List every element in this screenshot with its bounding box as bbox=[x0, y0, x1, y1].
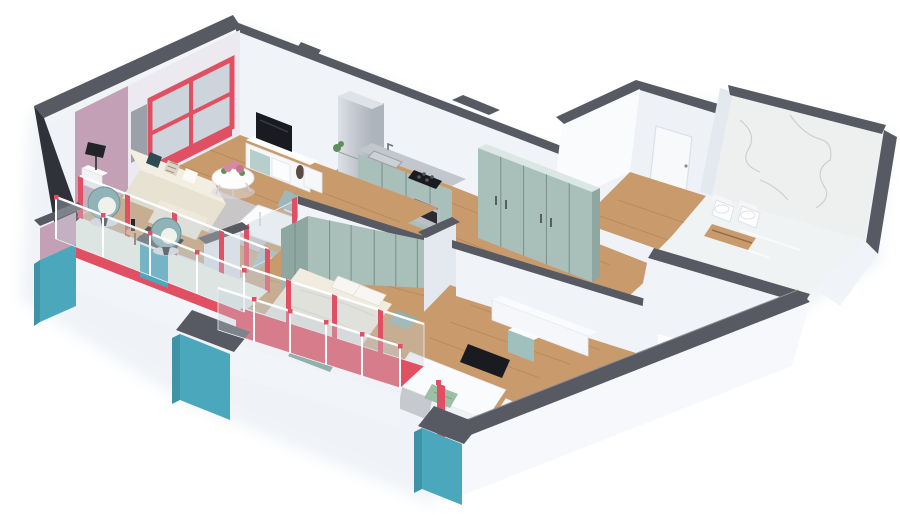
railing-red-connector bbox=[252, 297, 257, 302]
railing-red-connector bbox=[101, 213, 106, 218]
burner bbox=[425, 178, 429, 182]
centerpiece-flowers bbox=[236, 165, 244, 173]
railing-red-connector bbox=[54, 195, 59, 200]
burner bbox=[417, 175, 421, 179]
railing-red-connector bbox=[242, 268, 247, 273]
balcony-pillar-teal-side bbox=[172, 334, 180, 404]
balcony-return-teal-side bbox=[34, 260, 40, 326]
burner bbox=[430, 175, 434, 179]
bidet-seat bbox=[741, 211, 755, 219]
burner bbox=[422, 172, 426, 176]
railing-red-connector bbox=[195, 250, 200, 255]
egg-chair-cushion bbox=[98, 197, 116, 215]
railing-red-connector bbox=[324, 320, 329, 325]
railing-red-connector bbox=[360, 332, 365, 337]
toilet-seat bbox=[715, 205, 729, 213]
railing-red-connector bbox=[148, 231, 153, 236]
counter-plant-leaf bbox=[338, 141, 344, 147]
door-handle bbox=[684, 164, 687, 167]
end-pillar-teal-side bbox=[414, 428, 422, 493]
floorplan-3d-render: 3D isometric dollhouse render of an apar… bbox=[0, 0, 900, 515]
railing-red-connector bbox=[398, 344, 403, 349]
railing-red-connector bbox=[436, 380, 441, 385]
railing-red-connector bbox=[288, 309, 293, 314]
wardrobe-side bbox=[592, 188, 600, 282]
decor-vase bbox=[296, 165, 304, 179]
floorplan-render-stage: 3D isometric dollhouse render of an apar… bbox=[0, 0, 900, 515]
